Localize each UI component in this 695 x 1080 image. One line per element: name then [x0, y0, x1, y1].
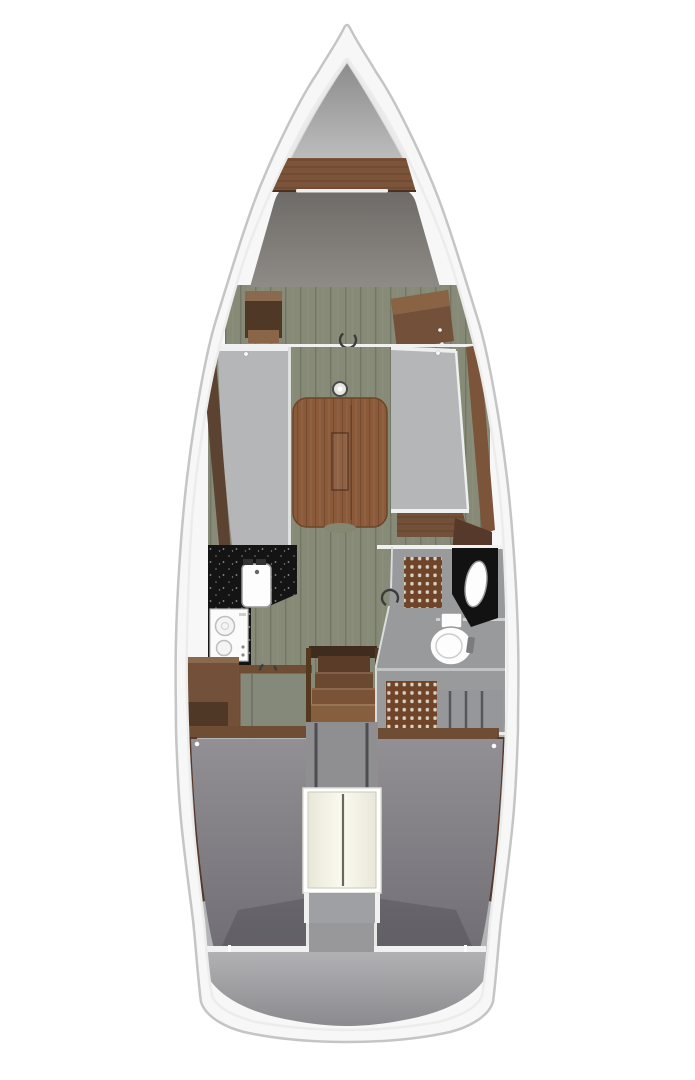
stove-burner-small: [217, 641, 232, 656]
port-side-cabinet-top: [186, 657, 239, 663]
shower-grating-aft: [386, 681, 437, 729]
table-leaf-handle: [332, 433, 348, 490]
berth-foot-line-port: [196, 946, 309, 952]
cabinet-knob: [438, 328, 442, 332]
stair-step-1: [318, 656, 370, 673]
head-aft-lockers: [437, 690, 503, 730]
berth-foot-line-starboard: [374, 946, 486, 952]
settee-port-inner-edge: [288, 347, 291, 553]
faucet-handle: [256, 559, 266, 565]
v-berth-mattress: [250, 192, 440, 287]
table-foot-notch: [324, 523, 356, 533]
engine-recess: [306, 893, 378, 923]
shower-grating-forward: [404, 557, 442, 608]
stair-rail-port: [306, 648, 311, 724]
forward-cabinet-port-top: [245, 291, 282, 301]
cushion-button: [244, 352, 248, 356]
stove-control-strip: [239, 613, 246, 616]
toilet-tank: [441, 613, 462, 628]
cushion-button: [436, 351, 440, 355]
stove-burner-large: [216, 617, 235, 636]
cushion-button: [492, 744, 497, 749]
settee-starboard-bottom-edge: [391, 509, 469, 513]
berth-header-starboard: [374, 728, 499, 740]
cushion-button: [195, 742, 200, 747]
stove-knob: [241, 653, 244, 656]
stove-knob: [241, 645, 244, 648]
settee-port-top-edge: [216, 347, 291, 351]
stair-step-2: [315, 672, 373, 689]
berth-header-port: [188, 726, 309, 738]
forward-cabinet-port-front: [248, 330, 279, 343]
v-berth-pillow-line: [296, 189, 388, 193]
recess-side: [304, 893, 309, 923]
stair-step-4: [309, 704, 379, 723]
boat-floorplan: [0, 0, 695, 1080]
head-aft-wall: [376, 668, 505, 671]
recess-side: [375, 893, 380, 923]
stair-step-3: [312, 688, 376, 705]
faucet-handle: [243, 559, 253, 565]
sink-drain: [255, 570, 259, 574]
galley-aft-cabinet: [239, 672, 309, 734]
mast-ring-center: [338, 387, 343, 392]
floorplan-canvas: [0, 0, 695, 1080]
bow-shelf-grain: [272, 158, 416, 192]
